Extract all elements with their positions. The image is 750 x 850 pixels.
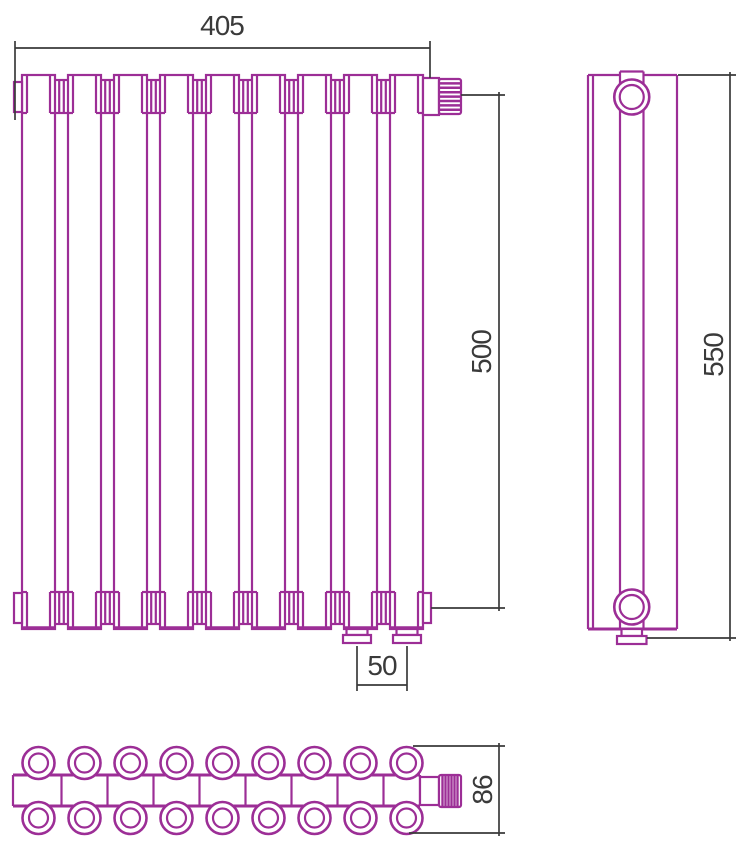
- height-dimension-label: 500: [466, 330, 497, 374]
- manifold-end-tab: [423, 593, 431, 623]
- tube-cross-section: [69, 747, 101, 834]
- manifold-end-tab: [14, 593, 22, 623]
- bottom-pipe-fitting: [343, 629, 371, 643]
- section-panel: [344, 75, 377, 629]
- section-panel: [298, 75, 331, 629]
- section-panel: [160, 75, 193, 629]
- side-view: [588, 72, 677, 645]
- tube-cross-section: [23, 747, 55, 834]
- spacing-dimension-label: 50: [367, 650, 397, 681]
- drawing-canvas: 405 500 50 550 86: [0, 0, 750, 850]
- section-connector: [101, 80, 114, 624]
- tube-cross-section: [391, 747, 423, 834]
- top-view: [13, 747, 461, 834]
- section-connector: [377, 80, 390, 624]
- section-connector: [147, 80, 160, 624]
- section-connector: [331, 80, 344, 624]
- air-valve-top-icon: [420, 775, 461, 807]
- section-panel: [114, 75, 147, 629]
- side-height-dimension-label: 550: [698, 333, 729, 377]
- section-panel: [390, 75, 423, 629]
- collector-boss-bottom: [614, 590, 649, 625]
- tube-cross-section: [161, 747, 193, 834]
- tube-cross-section: [299, 747, 331, 834]
- tube-cross-section: [115, 747, 147, 834]
- section-connector: [285, 80, 298, 624]
- side-bottom-fitting: [617, 629, 647, 644]
- section-connector: [193, 80, 206, 624]
- section-connector: [55, 80, 68, 624]
- section-connector: [239, 80, 252, 624]
- tube-cross-section: [345, 747, 377, 834]
- width-dimension-label: 405: [200, 10, 244, 41]
- collector-boss-top: [614, 80, 649, 115]
- depth-dimension-label: 86: [467, 775, 498, 805]
- section-panel: [206, 75, 239, 629]
- tube-cross-section: [253, 747, 285, 834]
- front-view: [14, 75, 461, 643]
- section-panel: [252, 75, 285, 629]
- section-panel: [22, 75, 55, 629]
- section-panel: [68, 75, 101, 629]
- radiator-technical-drawing: 405 500 50 550 86: [0, 0, 750, 850]
- bottom-pipe-fitting: [393, 629, 421, 643]
- air-valve-icon: [423, 78, 461, 115]
- tube-cross-section: [207, 747, 239, 834]
